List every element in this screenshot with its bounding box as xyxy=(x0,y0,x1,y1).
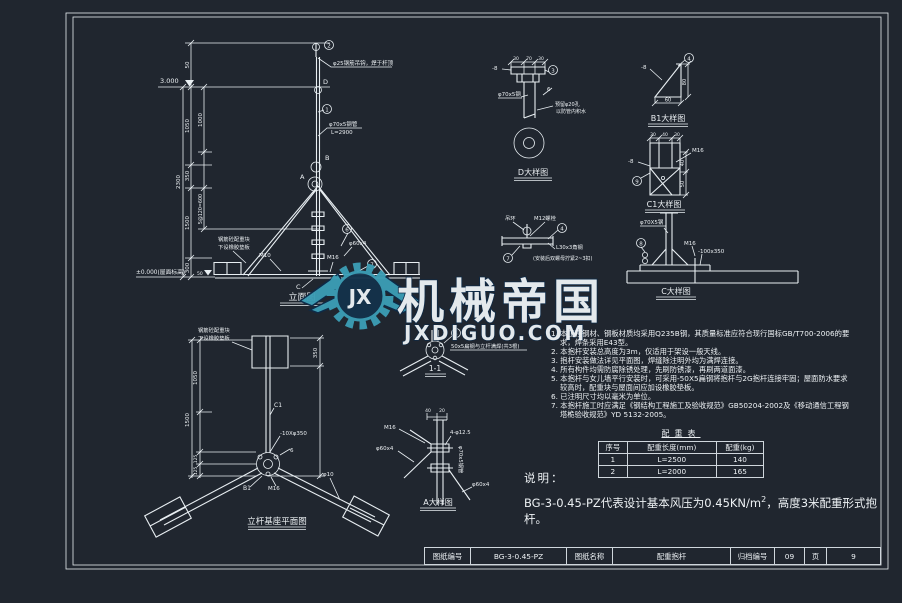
header-weight: 配重(kg) xyxy=(716,442,763,454)
pipe-label-c: φ70X5钢 xyxy=(640,218,664,226)
c1-ref-label: C1 xyxy=(274,402,282,409)
detail-c1-title: C1大样图 xyxy=(647,199,682,209)
titleblock-label-archive-no: 归档编号 xyxy=(731,548,775,564)
dim-rungs: 5@120=600 xyxy=(198,194,204,224)
base-plate-label: -10Xφ350 xyxy=(280,431,307,437)
elevation-dimension-lines xyxy=(136,40,330,280)
legend-line: BG-3-0.45-PZ代表设计基本风压为0.45KN/m2，高度3米配重形式抱… xyxy=(524,495,884,527)
plate-label-c: -100x350 xyxy=(698,249,725,255)
joint-d-circle xyxy=(315,87,322,94)
weld-6-label: 6 xyxy=(547,87,551,93)
table-title: 配重表 xyxy=(598,428,764,439)
angle-label: L30x3角钢 xyxy=(556,243,583,251)
titleblock-drawing-no: BG-3-0.45-PZ xyxy=(471,548,567,564)
table-row: 1 L=2500 140 xyxy=(599,454,764,466)
titleblock-label-drawing-no: 图纸编号 xyxy=(425,548,471,564)
dim-350: 350 xyxy=(185,170,191,181)
section-hub-inner xyxy=(432,347,438,353)
cad-drawing-page: 2 1 6 7 φ25钢筋吊钩，焊于杆顶 D B A C φ70x5钢管 L=2… xyxy=(0,0,902,603)
dim-60: 60 xyxy=(665,98,671,104)
washer-stack-circle-1 xyxy=(642,252,647,257)
dim-2300: 2300 xyxy=(176,175,182,189)
titleblock-page-no: 9 xyxy=(827,548,880,564)
mast-pipe-length: L=2900 xyxy=(331,130,353,136)
detail-b1-linework xyxy=(655,64,681,97)
dim-30a: 30 xyxy=(513,56,519,62)
dim-1500-plan: 1500 xyxy=(185,413,191,427)
cell-weight: 140 xyxy=(716,454,763,466)
hook-note: (安装后双螺母拧紧2~3扣) xyxy=(533,255,593,262)
titleblock-page-label: 页 xyxy=(805,548,827,564)
callout-1: 1 xyxy=(325,108,329,114)
block-note-2: 下设橡胶垫板 xyxy=(218,243,250,251)
m16-a-label: M16 xyxy=(384,425,396,431)
m16-label-c: M16 xyxy=(684,241,696,247)
bolt-center-dot xyxy=(661,176,664,179)
dim-30b: 30 xyxy=(538,56,544,62)
m16-label-c1: M16 xyxy=(692,148,704,154)
dim-50: 50 xyxy=(185,61,191,68)
plan-linework xyxy=(145,336,390,537)
dim-80: 80 xyxy=(682,79,688,85)
block-note-1: 钢筋砼配重块 xyxy=(218,235,250,243)
titleblock-drawing-name: 配重抱杆 xyxy=(613,548,731,564)
detail-d: 3 30 70 30 -8 6 φ70x5钢 预留φ20孔 以防管内积水 D大样… xyxy=(492,56,586,181)
dim-50b: 50 xyxy=(197,271,203,277)
joint-c-label: C xyxy=(296,283,301,291)
section-title-underline xyxy=(425,374,446,377)
weld-6-plan: 6 xyxy=(290,448,294,454)
phi10-label: φ10 xyxy=(323,472,334,478)
detail-c1-title-underline xyxy=(645,210,685,213)
dim-300: 300 xyxy=(185,262,191,273)
callout-2: 2 xyxy=(327,44,331,50)
dim-70: 70 xyxy=(526,56,532,62)
dim-1050-plan: 1050 xyxy=(193,371,199,385)
dim-20-a: 20 xyxy=(439,408,445,414)
callout-4b: 4 xyxy=(687,57,691,63)
callout-4: 4 xyxy=(560,227,564,233)
cell-length: L=2500 xyxy=(627,454,716,466)
plan-title: 立杆基座平面图 xyxy=(247,516,307,527)
note-item: 3. 抱杆安装做法详见平面图，焊缝除注明外均为满焊连接。 xyxy=(551,356,851,365)
detail-a-title-underline xyxy=(420,508,456,511)
dim-40-a: 40 xyxy=(425,408,431,414)
detail-a-title: A大样图 xyxy=(423,497,452,507)
detail-b1: 4 -8 60 80 B1大样图 xyxy=(641,54,694,127)
plate-8-label: -8 xyxy=(492,66,498,72)
callout-6: 6 xyxy=(345,228,349,234)
dim-r40: 40 xyxy=(680,160,686,166)
detail-a: 40 20 M16 φ60x4 4-φ12.5 φ70x5钢管 φ60x4 A大… xyxy=(376,408,490,511)
drain-note-2: 以防管内积水 xyxy=(556,108,586,115)
hub-inner-circle xyxy=(264,460,273,469)
gear-logo-text: JX xyxy=(347,285,372,309)
dim-r50: 50 xyxy=(680,181,686,187)
bolt-m16-label: M16 xyxy=(327,255,339,261)
joint-a-label: A xyxy=(300,173,305,181)
joint-b-label: B xyxy=(325,154,329,162)
p60a-label: φ60x4 xyxy=(376,446,394,452)
dim-30b-c1: 30 xyxy=(674,132,680,138)
pipe-label: φ70x5钢 xyxy=(498,90,521,98)
detail-c1-linework xyxy=(650,143,680,195)
dim-125b: 125 xyxy=(193,467,199,476)
m16-plan-label: M16 xyxy=(268,486,280,492)
detail-c-title-underline xyxy=(656,297,696,300)
bolt-m10-label: M10 xyxy=(259,253,271,259)
leg-pipe-label: φ60x4 xyxy=(349,241,367,247)
level-3000: 3.000 xyxy=(160,77,179,85)
note-item: 1. 本工程钢材、钢板材质均采用Q235B钢，其质量标准应符合现行国标GB/T7… xyxy=(551,329,851,347)
detail-b1-title-underline xyxy=(648,124,688,127)
note-item: 4. 所有构件均需防腐除锈处理，先刷防锈漆，再刷两道面漆。 xyxy=(551,365,851,374)
b1-ref-label: B1 xyxy=(243,485,251,492)
detail-hook: 4 7 吊环 M12螺栓 L30x3角钢 (安装后双螺母拧紧2~3扣) xyxy=(502,214,593,263)
section-title: 1-1 xyxy=(429,364,441,373)
detail-c1: 9 30 40 30 M16 -8 40 50 C1大样图 xyxy=(628,132,704,213)
hole-label: 4-φ12.5 xyxy=(450,430,471,436)
detail-d-title: D大样图 xyxy=(518,167,548,177)
note-item: 2. 本抱杆安装总高度为3m，仅适用于架设一般天线。 xyxy=(551,347,851,356)
joint-a-inner-circle xyxy=(312,181,318,187)
note-item: 6. 已注明尺寸均以毫米为单位。 xyxy=(551,392,851,401)
callout-3: 3 xyxy=(551,69,555,75)
detail-b1-title: B1大样图 xyxy=(651,113,686,123)
dim-350-plan: 350 xyxy=(313,347,319,358)
note-item: 5. 本抱杆与女儿墙平行安装时，可采用-50X5扁钢将抱杆与2G抱杆连接牢固；屋… xyxy=(551,374,851,392)
legend-caption: 说明： xyxy=(524,470,884,486)
callout-9: 9 xyxy=(635,180,639,186)
general-notes: 1. 本工程钢材、钢板材质均采用Q235B钢，其质量标准应符合现行国标GB/T7… xyxy=(551,329,851,419)
dim-40-c1: 40 xyxy=(662,132,668,138)
dim-1050: 1050 xyxy=(185,119,191,133)
cell-index: 1 xyxy=(599,454,628,466)
callout-7b: 7 xyxy=(506,257,510,263)
plan-view: 钢筋砼配重块 下设橡胶垫板 350 1050 1500 125 125 C1 -… xyxy=(145,326,390,537)
detail-d-title-underline xyxy=(514,178,552,181)
hook-label: φ25钢筋吊钩，焊于杆顶 xyxy=(333,59,394,67)
plan-note-2: 下设橡胶垫板 xyxy=(198,334,230,342)
level-zero: ±0.000(屋面标高) xyxy=(136,268,185,276)
callout-8: 8 xyxy=(639,242,643,248)
table-header-row: 序号 配重长度(mm) 配重(kg) xyxy=(599,442,764,454)
elevation-title-underline xyxy=(280,303,324,306)
legend-text-1: BG-3-0.45-PZ代表设计基本风压为0.45KN/m xyxy=(524,496,761,510)
dim-1500: 1500 xyxy=(185,216,191,230)
detail-c: 8 φ70X5钢 M16 -100x350 C大样图 xyxy=(627,213,798,300)
titleblock-archive-no: 09 xyxy=(775,548,805,564)
plan-title-underline xyxy=(248,527,306,530)
dim-1000: 1000 xyxy=(198,113,204,127)
elevation-view: 2 1 6 7 φ25钢筋吊钩，焊于杆顶 D B A C φ70x5钢管 L=2… xyxy=(136,40,420,306)
title-block: 图纸编号 BG-3-0.45-PZ 图纸名称 配重抱杆 归档编号 09 页 9 xyxy=(424,547,881,565)
plate-8-label-b1: -8 xyxy=(641,65,647,71)
detail-c-title: C大样图 xyxy=(661,286,691,296)
washer-stack-circle-2 xyxy=(642,258,647,263)
legend-block: 说明： BG-3-0.45-PZ代表设计基本风压为0.45KN/m2，高度3米配… xyxy=(524,470,884,527)
joint-d-label: D xyxy=(323,78,328,86)
drain-note-1: 预留φ20孔 xyxy=(555,101,580,108)
note-item: 7. 本抱杆施工时应满足《钢结构工程施工及验收规范》GB50204-2002及《… xyxy=(551,401,851,419)
mast-pipe-label: φ70x5钢管 xyxy=(329,120,358,128)
header-index: 序号 xyxy=(599,442,628,454)
lug-label: 吊环 xyxy=(505,215,516,222)
plan-note-1: 钢筋砼配重块 xyxy=(198,326,230,334)
washer-inner-circle xyxy=(524,138,535,149)
titleblock-label-drawing-name: 图纸名称 xyxy=(567,548,613,564)
washer-outer-circle xyxy=(514,128,544,158)
pipe-vertical-label: φ70x5钢管 xyxy=(457,446,465,473)
dim-30a-c1: 30 xyxy=(650,132,656,138)
plan-dimension-lines xyxy=(188,335,324,479)
dim-125a: 125 xyxy=(193,455,199,464)
p60b-label: φ60x4 xyxy=(472,482,490,488)
detail-hook-linework xyxy=(502,224,553,248)
header-length: 配重长度(mm) xyxy=(627,442,716,454)
plate-8-label-c1: -8 xyxy=(628,159,634,165)
m12-label: M12螺栓 xyxy=(534,214,557,222)
